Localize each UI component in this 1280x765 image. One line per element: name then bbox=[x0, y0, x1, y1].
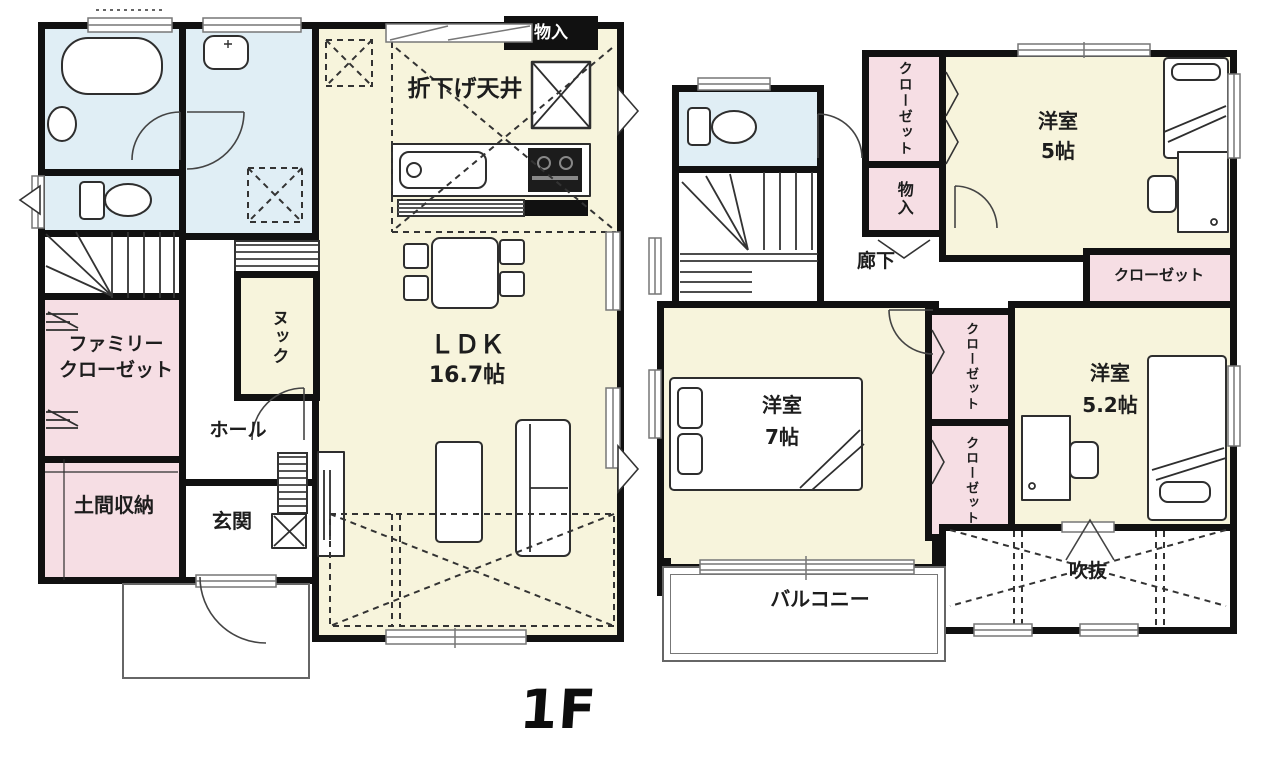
label-cml-col2: ゼット bbox=[963, 481, 977, 526]
label-bedroom7-name: 洋室 bbox=[736, 392, 828, 418]
room-bathroom bbox=[38, 22, 186, 176]
label-bedroom52-size: 5.2帖 bbox=[1062, 392, 1158, 418]
room-toilet-2f bbox=[672, 85, 824, 173]
bay-marker-icon bbox=[20, 186, 40, 214]
floorplan-canvas: 折下げ天井 物入 ＬＤＫ 16.7帖 ヌック ファミリー クローゼット 土間収納… bbox=[0, 0, 1280, 765]
label-bedroom52-name: 洋室 bbox=[1062, 360, 1158, 386]
label-cmu-col1: クロー bbox=[963, 322, 977, 367]
room-toilet-1f bbox=[38, 169, 186, 237]
label-bedroom5-name: 洋室 bbox=[1012, 108, 1104, 134]
label-storage-2f: 物入 bbox=[874, 168, 934, 230]
room-doma-storage bbox=[38, 456, 186, 584]
label-closet-east: クローゼット bbox=[1088, 262, 1230, 288]
room-washroom bbox=[179, 22, 319, 240]
label-closet-nw-col2: ゼット bbox=[896, 109, 911, 157]
label-closet-nw: クロー ゼット bbox=[868, 56, 940, 162]
label-corridor: 廊下 bbox=[836, 248, 916, 274]
label-bedroom7-size: 7帖 bbox=[736, 424, 828, 450]
label-closet-mid-upper: クロー ゼット bbox=[932, 316, 1008, 418]
label-bedroom5-size: 5帖 bbox=[1012, 138, 1104, 164]
label-void: 吹抜 bbox=[1050, 558, 1126, 584]
label-entrance: 玄関 bbox=[194, 508, 270, 534]
label-ldk-name: ＬＤＫ bbox=[405, 330, 529, 360]
label-balcony: バルコニー bbox=[738, 586, 902, 612]
label-dropped-ceiling: 折下げ天井 bbox=[380, 76, 550, 104]
shoe-cabinet-icon bbox=[277, 452, 308, 514]
label-family-closet-2: クローゼット bbox=[46, 358, 186, 382]
label-storage-1f: 物入 bbox=[506, 18, 596, 48]
label-cmu-col2: ゼット bbox=[963, 367, 977, 412]
room-stairs-2f bbox=[672, 166, 824, 308]
label-doma-storage: 土間収納 bbox=[58, 492, 170, 518]
nook-shelf-icon bbox=[234, 240, 320, 274]
label-ldk-size: 16.7帖 bbox=[405, 362, 529, 390]
label-nook: ヌック bbox=[258, 284, 298, 390]
label-cml-col1: クロー bbox=[963, 436, 977, 481]
porch bbox=[122, 583, 310, 679]
label-closet-nw-col1: クロー bbox=[896, 61, 911, 109]
floor-1-label: 1F bbox=[518, 678, 599, 741]
label-closet-mid-lower: クロー ゼット bbox=[932, 430, 1008, 532]
label-family-closet-1: ファミリー bbox=[52, 332, 180, 356]
room-stairs-1f bbox=[38, 230, 186, 300]
label-hall: ホール bbox=[196, 418, 280, 442]
